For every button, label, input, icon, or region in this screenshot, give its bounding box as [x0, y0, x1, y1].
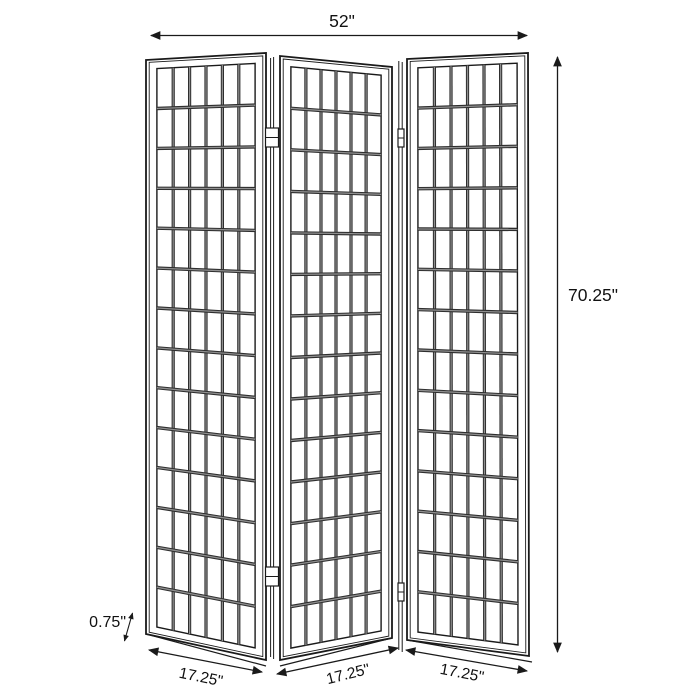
panel-3: [407, 53, 532, 662]
panel3-width-dimension: 17.25": [406, 650, 527, 686]
width-dimension-label: 52": [329, 11, 355, 31]
room-divider-dimension-diagram: 52" 70.25" 17.25" 17.25" 17.25" 0.75": [0, 0, 700, 700]
panel2-width-label: 17.25": [325, 661, 372, 688]
grid-bar-highlight: [291, 274, 381, 275]
height-dimension: 70.25": [558, 57, 619, 652]
grid-bar-highlight: [418, 188, 517, 189]
panel-1: [146, 53, 266, 666]
panel3-width-label: 17.25": [439, 661, 486, 686]
diagram-stage: 52" 70.25" 17.25" 17.25" 17.25" 0.75": [0, 0, 700, 700]
thickness-dimension-label: 0.75": [89, 614, 126, 631]
panel1-width-label: 17.25": [178, 665, 225, 690]
height-dimension-label: 70.25": [568, 285, 618, 305]
thickness-dimension: 0.75": [89, 613, 132, 641]
panel-2: [280, 56, 392, 666]
width-dimension: 52": [151, 11, 527, 36]
folding-screen-drawing: [146, 53, 532, 666]
